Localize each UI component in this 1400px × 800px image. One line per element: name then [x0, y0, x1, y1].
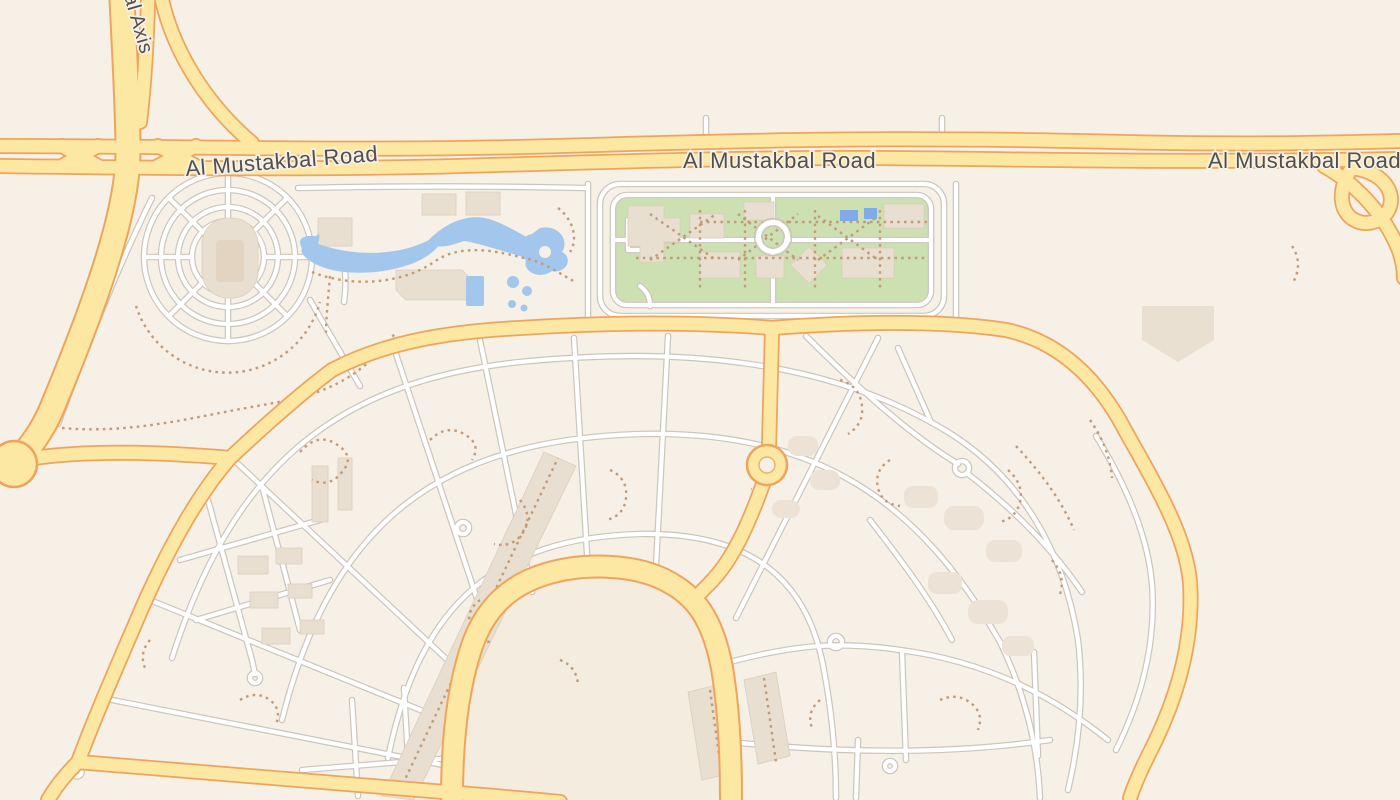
road-label-mustakbal-east: Al Mustakbal Road [1208, 148, 1400, 173]
pool [466, 276, 484, 306]
blue-building [864, 208, 877, 219]
map-viewport[interactable]: al Axis Al Mustakbal Road Al Mustakbal R… [0, 0, 1400, 800]
road-label-mustakbal-center: Al Mustakbal Road [683, 148, 876, 173]
roundabout-west [0, 441, 37, 487]
blue-building [840, 210, 858, 221]
map-canvas[interactable]: al Axis Al Mustakbal Road Al Mustakbal R… [0, 0, 1400, 800]
